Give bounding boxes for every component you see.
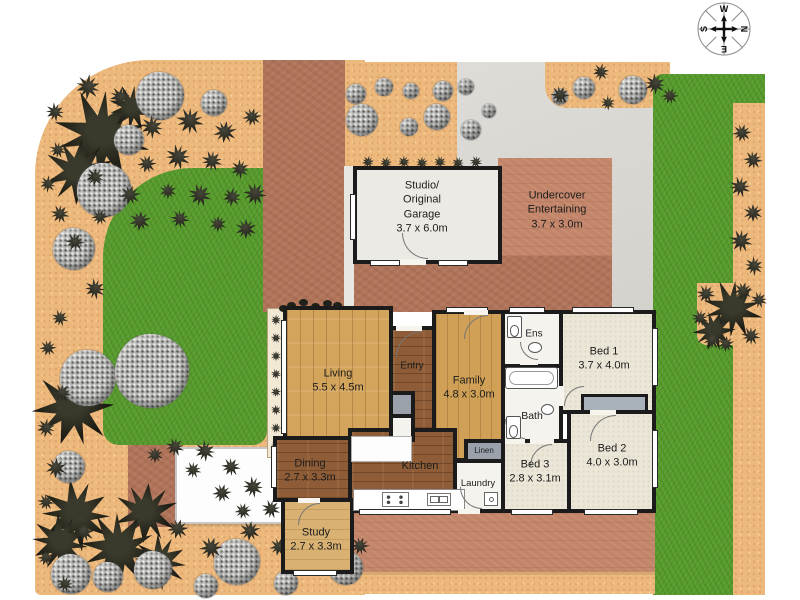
round-bush: [424, 104, 450, 130]
room-label-entry: Entry: [400, 360, 423, 373]
round-bush: [194, 574, 218, 598]
patio-paving: [345, 505, 655, 577]
basin-fixture: [528, 342, 542, 353]
window: [511, 509, 553, 515]
room-label-study: Study2.7 x 3.3m: [290, 526, 341, 555]
door-gap: [400, 259, 426, 265]
floor-plan-canvas: Studio/OriginalGarage3.7 x 6.0mUndercove…: [0, 0, 800, 600]
lawn-left: [103, 168, 267, 445]
round-bush: [114, 125, 144, 155]
window: [281, 320, 287, 434]
label-line: Living: [312, 367, 363, 381]
round-bush: [214, 539, 260, 585]
room-label-bath: Bath: [521, 410, 543, 424]
label-line: Laundry: [461, 478, 495, 490]
label-line: Bed 3: [509, 458, 560, 472]
trough-fixture: [484, 492, 498, 506]
label-line: Study: [290, 526, 341, 540]
sink-fixture: [427, 493, 451, 506]
label-line: 4.8 x 3.0m: [443, 388, 494, 402]
label-line: Bath: [521, 410, 543, 424]
round-bush: [619, 76, 647, 104]
label-line: 3.7 x 3.0m: [528, 217, 587, 231]
toilet-fixture: [507, 316, 522, 338]
stove-fixture: [382, 492, 409, 507]
round-bush: [60, 350, 116, 406]
label-line: Family: [443, 374, 494, 388]
round-bush: [134, 551, 172, 589]
window: [350, 194, 356, 240]
label-line: 2.7 x 3.3m: [284, 471, 335, 485]
door-gap: [505, 439, 525, 444]
compass-letter: E: [721, 44, 727, 54]
label-line: Kitchen: [402, 459, 439, 473]
round-bush: [403, 83, 419, 99]
room-label-kitchen: Kitchen: [402, 459, 439, 473]
label-line: Bed 2: [586, 442, 637, 456]
label-line: Undercover: [528, 189, 587, 203]
round-bush: [461, 120, 481, 140]
room-label-studio: Studio/OriginalGarage3.7 x 6.0m: [396, 178, 447, 235]
label-line: Entry: [400, 360, 423, 373]
room-label-living: Living5.5 x 4.5m: [312, 367, 363, 396]
room-label-undercover: UndercoverEntertaining3.7 x 3.0m: [528, 189, 587, 232]
round-bush: [433, 81, 453, 101]
room-label-bed2: Bed 24.0 x 3.0m: [586, 442, 637, 471]
label-line: 2.8 x 3.1m: [509, 472, 560, 486]
compass-letter: W: [720, 4, 729, 14]
round-bush: [458, 79, 474, 95]
room-label-dining: Dining2.7 x 3.3m: [284, 457, 335, 486]
label-line: Studio/: [396, 178, 447, 192]
room-label-ens: Ens: [525, 328, 542, 341]
label-line: 5.5 x 4.5m: [312, 381, 363, 395]
round-bush: [136, 72, 184, 120]
compass-letter: S: [699, 26, 709, 32]
window: [271, 446, 277, 488]
round-bush: [51, 554, 91, 594]
door-gap: [520, 360, 538, 365]
label-line: 4.0 x 3.0m: [586, 456, 637, 470]
round-bush: [346, 104, 378, 136]
room-label-family: Family4.8 x 3.0m: [443, 374, 494, 403]
window: [438, 260, 468, 266]
window: [509, 307, 545, 313]
label-line: 3.7 x 4.0m: [578, 359, 629, 373]
round-bush: [482, 104, 496, 118]
window: [584, 509, 638, 515]
label-line: Entertaining: [528, 203, 587, 217]
window: [652, 430, 658, 488]
label-line: Garage: [396, 207, 447, 221]
path-bottom: [345, 572, 655, 594]
round-bush: [201, 90, 227, 116]
label-line: Dining: [284, 457, 335, 471]
round-bush: [346, 84, 366, 104]
label-line: Bed 1: [578, 345, 629, 359]
window: [359, 509, 451, 515]
room-label-laundry: Laundry: [461, 478, 495, 490]
window: [572, 307, 634, 313]
label-line: Ens: [525, 328, 542, 341]
path-right-edge: [733, 103, 765, 595]
label-line: Original: [396, 193, 447, 207]
toilet-fixture: [506, 416, 521, 439]
window: [370, 260, 400, 266]
door-gap: [458, 509, 480, 514]
compass-letter: N: [739, 26, 749, 33]
label-line: 3.7 x 6.0m: [396, 221, 447, 235]
room-label-bed1: Bed 13.7 x 4.0m: [578, 345, 629, 374]
room-label-bed3: Bed 32.8 x 3.1m: [509, 458, 560, 487]
round-bush: [400, 118, 418, 136]
round-bush: [573, 77, 595, 99]
label-line: Linen: [474, 446, 494, 456]
round-bush: [115, 334, 189, 408]
window: [293, 570, 337, 576]
window: [652, 328, 658, 386]
round-bush: [93, 562, 123, 592]
room-label-linen: Linen: [474, 446, 494, 456]
label-line: 2.7 x 3.3m: [290, 540, 341, 554]
round-bush: [375, 78, 393, 96]
tub-fixture: [505, 367, 558, 389]
shrub-dot: [299, 299, 308, 306]
